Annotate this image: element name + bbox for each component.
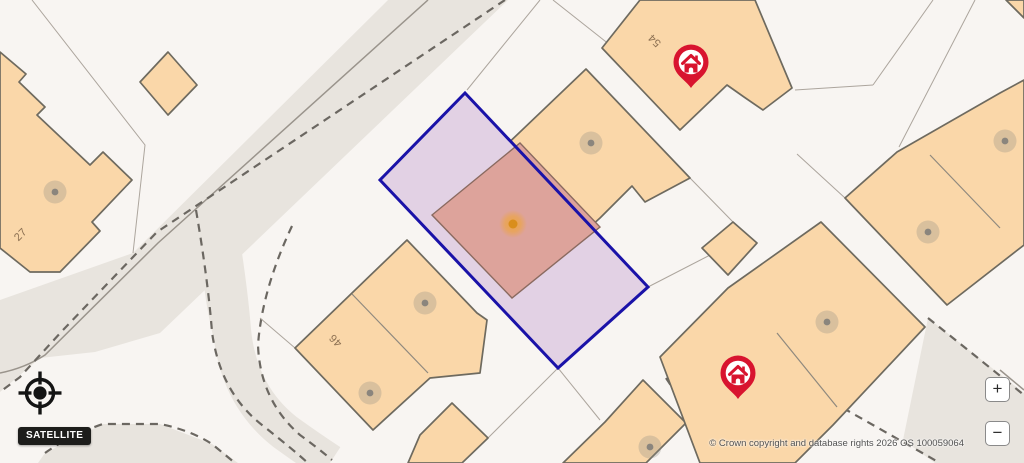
map-attribution: © Crown copyright and database rights 20… [709, 438, 964, 449]
crosshair-icon [12, 365, 68, 421]
zoom-out-button[interactable]: − [985, 421, 1010, 446]
os-map: 27 54 46 [0, 0, 1024, 463]
zoom-in-button[interactable]: + [985, 377, 1010, 402]
satellite-toggle-button[interactable]: SATELLITE [18, 427, 91, 445]
selected-plot-marker [499, 210, 527, 238]
map-canvas[interactable]: 27 54 46 SATELLITE + − © Crown copyright… [0, 0, 1024, 463]
